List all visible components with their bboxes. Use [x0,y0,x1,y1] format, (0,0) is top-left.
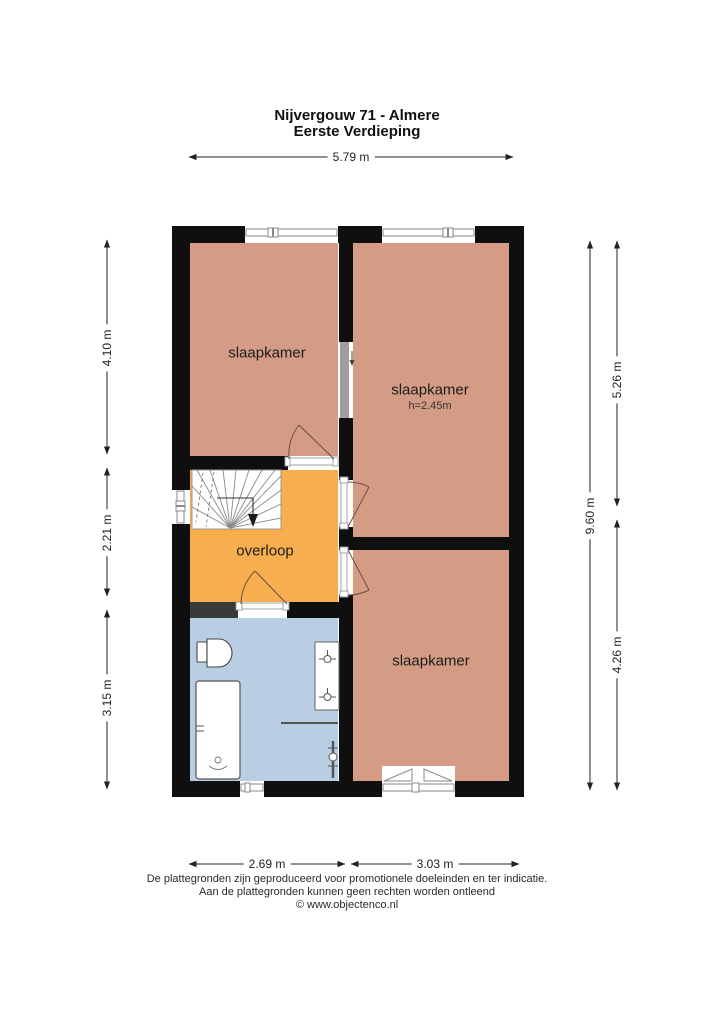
window-handle-icon [443,228,448,237]
toilet-icon [207,639,232,667]
dim-right-2: 4.26 m [610,632,624,679]
dim-right-1: 5.26 m [610,357,624,404]
window-handle-icon [245,783,250,792]
window-top-right [383,229,474,236]
dim-left-3: 3.15 m [100,675,114,722]
door-jamb [340,547,348,553]
door-frame-bathroom [239,603,286,609]
disclaimer-line-1: De plattegronden zijn geproduceerd voor … [147,873,548,886]
door-jamb [340,523,348,529]
label-bedroom-top-right: slaapkamer [391,382,469,399]
bathtub-icon [196,681,240,779]
dim-left-1: 4.10 m [100,325,114,372]
window-top-left [246,229,337,236]
window-handle-icon [268,228,273,237]
toilet-icon [197,642,207,662]
door-swing-icon [348,482,369,527]
window-handle-icon [176,501,185,506]
door-swing-icon [348,550,369,595]
label-bedroom-bottom-right: slaapkamer [392,653,470,670]
door-frame-bedroom-top-right [341,481,347,526]
door-frame-bedroom-bottom-right [341,551,347,594]
label-bedroom-top-left: slaapkamer [228,345,306,362]
floorplan-page: Nijvergouw 71 - Almere Eerste Verdieping [0,0,724,1024]
door-frame-bedroom-top-left [288,458,336,465]
bathroom-fixtures [196,639,339,779]
window-handle-icon [176,507,185,512]
door-jamb [340,591,348,597]
label-landing: overloop [236,543,294,560]
staircase [192,470,281,529]
window-handle-icon [449,228,454,237]
window-bathroom [241,784,263,791]
door-jamb [340,477,348,483]
dim-bottom-2: 3.03 m [412,857,459,871]
dim-top: 5.79 m [328,150,375,164]
door-swing-icon [289,425,334,459]
partition-arrow-icon [350,351,355,366]
disclaimer-line-2: Aan de plattegronden kunnen geen rechten… [147,886,548,899]
shower-icon [328,741,338,778]
disclaimer-line-3: © www.objectenco.nl [147,899,548,912]
window-handle-icon [274,228,279,237]
window-divider [412,783,419,792]
dim-right-total: 9.60 m [583,493,597,540]
dim-left-2: 2.21 m [100,510,114,557]
disclaimer: De plattegronden zijn geproduceerd voor … [147,873,548,912]
door-swing-icon [241,571,287,604]
label-ceiling-height: h=2.45m [408,400,451,412]
dim-bottom-1: 2.69 m [244,857,291,871]
